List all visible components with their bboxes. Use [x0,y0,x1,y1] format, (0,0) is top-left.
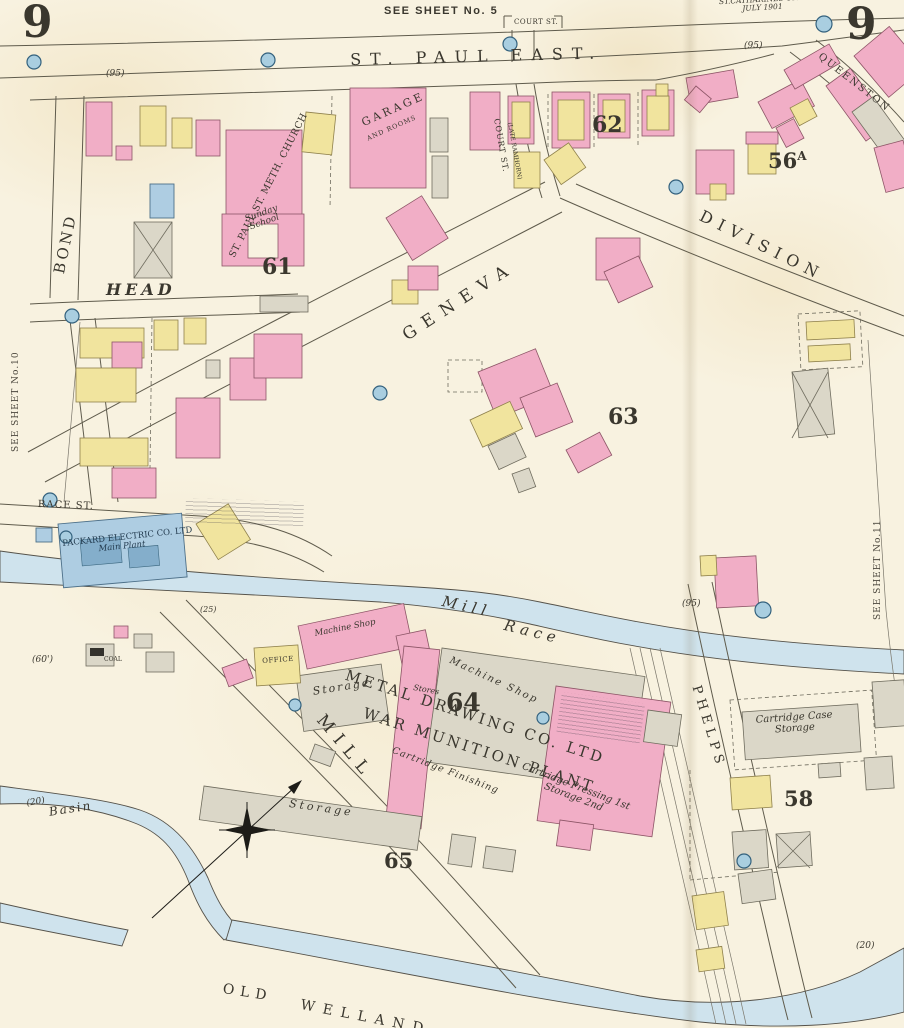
see-sheet-top-label: SEE SHEET No. 5 [384,6,498,18]
annotation-95-mid: (95) [682,600,700,609]
paper-crease [682,0,698,1028]
see-sheet-right-label: SEE SHEET No.11 [874,519,883,620]
coal-label: COAL [104,657,122,663]
block-number-56: 56 [768,148,797,173]
block-number-62: 62 [592,114,623,137]
annotation-95-left: (95) [106,70,124,79]
block-number-58: 58 [784,788,813,810]
notes-scribble-race-st [185,498,304,528]
see-sheet-left-label: SEE SHEET No.10 [12,351,21,452]
map-sheet: 9 9 SEE SHEET No. 5 ST.CATHARINES ONT. J… [0,0,904,1028]
block-number-56-suffix: A [797,149,806,163]
annotation-25: (25) [200,606,216,614]
block-number-56a: 56A [768,150,807,172]
sheet-number-left: 9 [22,0,53,46]
street-label-race-st: RACE ST. [38,500,94,512]
annotation-20-right: (20) [856,942,874,951]
basin-arm [0,903,128,946]
annotation-60: (60') [32,656,53,665]
block-number-61: 61 [262,256,293,279]
sheet-number-right: 9 [846,2,877,48]
street-label-head: HEAD [106,282,176,299]
block-number-65: 65 [384,850,413,872]
block-number-63: 63 [608,406,639,429]
street-label-court-box: COURT ST. [514,19,558,26]
annotation-95-right: (95) [744,42,762,51]
